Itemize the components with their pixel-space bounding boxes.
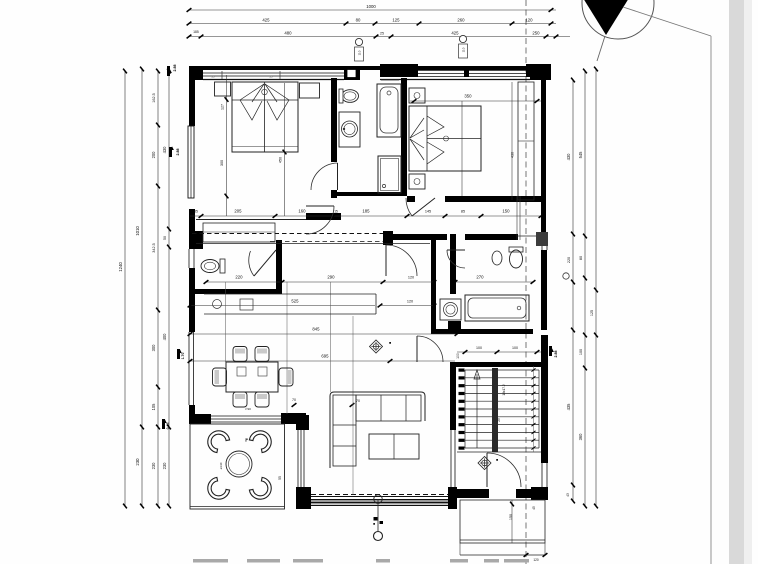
svg-text:425: 425 <box>451 31 459 36</box>
svg-text:430: 430 <box>162 146 167 154</box>
svg-text:25: 25 <box>380 32 384 36</box>
svg-text:50: 50 <box>163 236 167 240</box>
svg-text:2.88: 2.88 <box>176 149 180 156</box>
svg-text:55: 55 <box>278 476 282 480</box>
svg-text:18x17.2: 18x17.2 <box>502 384 506 396</box>
svg-text:100: 100 <box>512 346 518 350</box>
svg-text:110: 110 <box>358 50 362 55</box>
svg-text:1240: 1240 <box>118 262 123 272</box>
svg-text:342.5: 342.5 <box>152 243 156 253</box>
svg-text:125: 125 <box>590 310 594 316</box>
svg-text:185: 185 <box>193 30 199 34</box>
svg-text:■: ■ <box>496 458 498 462</box>
svg-text:125: 125 <box>392 18 400 23</box>
svg-text:1.70: 1.70 <box>181 353 185 360</box>
svg-text:300: 300 <box>220 160 224 166</box>
svg-text:162.5: 162.5 <box>152 93 156 103</box>
svg-text:185: 185 <box>362 209 370 214</box>
svg-text:25: 25 <box>269 75 273 79</box>
svg-text:ø130: ø130 <box>219 462 223 469</box>
svg-text:110: 110 <box>462 47 466 52</box>
svg-text:1010: 1010 <box>135 226 140 236</box>
svg-text:70: 70 <box>356 399 360 403</box>
svg-text:480: 480 <box>284 31 292 36</box>
svg-text:450: 450 <box>279 157 283 163</box>
svg-text:695: 695 <box>321 354 329 359</box>
svg-text:250: 250 <box>532 31 540 36</box>
svg-text:45: 45 <box>532 506 536 510</box>
svg-text:105: 105 <box>151 403 156 411</box>
svg-text:230: 230 <box>135 458 140 466</box>
svg-text:200: 200 <box>151 151 156 159</box>
svg-text:85: 85 <box>461 210 465 214</box>
svg-text:■: ■ <box>389 341 391 345</box>
svg-text:■: ■ <box>246 437 248 441</box>
svg-text:100: 100 <box>476 346 482 350</box>
svg-text:435: 435 <box>566 403 571 411</box>
svg-text:29: 29 <box>497 418 501 422</box>
svg-text:1000: 1000 <box>366 4 376 9</box>
svg-text:80: 80 <box>356 18 361 23</box>
svg-text:350: 350 <box>464 94 472 99</box>
svg-text:545: 545 <box>578 151 583 159</box>
svg-text:127: 127 <box>221 104 225 110</box>
svg-text:85: 85 <box>194 210 198 214</box>
svg-text:220: 220 <box>235 275 243 280</box>
svg-text:845: 845 <box>312 327 320 332</box>
svg-text:400: 400 <box>162 333 167 341</box>
svg-text:43: 43 <box>566 493 570 497</box>
svg-text:220: 220 <box>567 257 571 263</box>
svg-text:430: 430 <box>566 153 571 161</box>
svg-text:80: 80 <box>579 256 583 260</box>
svg-text:100: 100 <box>456 353 460 359</box>
svg-text:120: 120 <box>525 18 533 23</box>
svg-text:2.88: 2.88 <box>554 351 558 358</box>
svg-text:260: 260 <box>457 18 465 23</box>
svg-text:205: 205 <box>234 209 242 214</box>
svg-text:230: 230 <box>162 462 167 470</box>
svg-text:425: 425 <box>262 18 270 23</box>
svg-text:25: 25 <box>211 75 215 79</box>
svg-text:525: 525 <box>291 299 299 304</box>
svg-text:160: 160 <box>298 209 306 214</box>
svg-text:■: ■ <box>373 522 375 526</box>
svg-text:120: 120 <box>407 300 413 304</box>
svg-text:15: 15 <box>334 210 338 214</box>
svg-text:70: 70 <box>292 398 296 402</box>
svg-text:0.45: 0.45 <box>166 423 170 430</box>
svg-text:145: 145 <box>425 210 431 214</box>
svg-text:430: 430 <box>511 152 515 158</box>
svg-text:150: 150 <box>502 209 510 214</box>
svg-text:∅90: ∅90 <box>245 407 251 411</box>
svg-text:150: 150 <box>509 514 513 520</box>
svg-text:290: 290 <box>327 275 335 280</box>
svg-text:230: 230 <box>151 462 156 470</box>
svg-text:270: 270 <box>476 275 484 280</box>
svg-text:120: 120 <box>533 558 539 562</box>
svg-text:120: 120 <box>408 276 414 280</box>
svg-text:2.88: 2.88 <box>173 65 177 72</box>
svg-text:360: 360 <box>578 433 583 441</box>
svg-text:100: 100 <box>579 349 583 355</box>
svg-text:300: 300 <box>151 344 156 352</box>
